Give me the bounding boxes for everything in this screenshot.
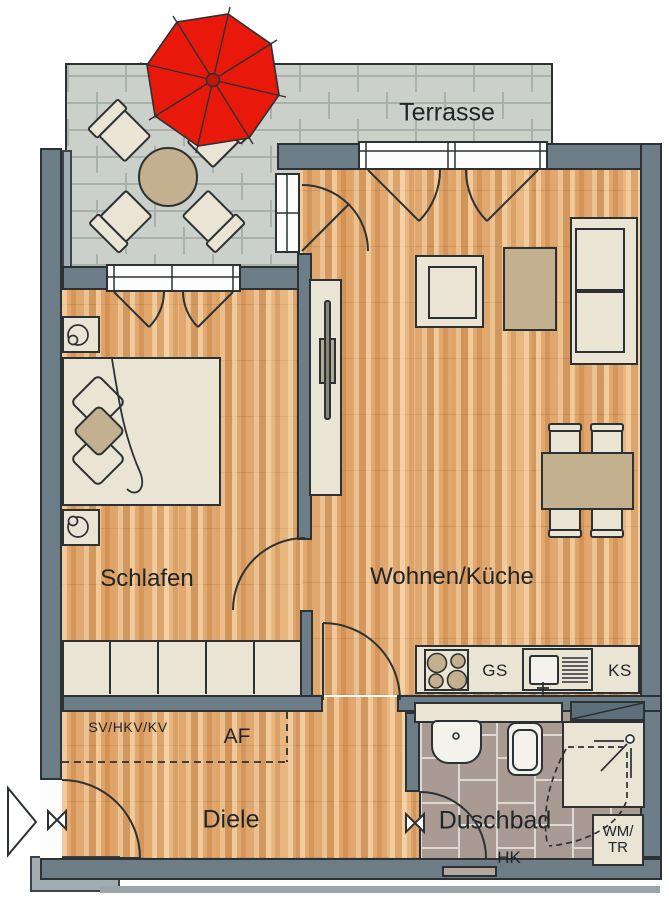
tv-screen	[324, 300, 331, 420]
armchair-seat	[428, 266, 477, 319]
label-wm-line1: WM/	[603, 824, 634, 840]
dining-chair-seat	[591, 507, 623, 531]
shower	[562, 721, 645, 808]
living-tall-window	[275, 173, 300, 253]
bedroom-window	[106, 264, 241, 292]
dining-table	[541, 452, 634, 510]
room-label-diele: Diele	[203, 806, 260, 835]
dining-chair-back	[548, 529, 582, 538]
label-gs: GS	[482, 661, 508, 681]
radiator	[442, 866, 497, 877]
wall-bottom	[40, 858, 662, 880]
floor-plan: Terrasse Schlafen Wohnen/Küche Diele Dus…	[0, 0, 669, 900]
entrance-arrow-icon	[8, 788, 36, 855]
label-sv-hkv-kv: SV/HKV/KV	[88, 719, 167, 735]
wall-hall-left	[62, 695, 323, 712]
dining-chair-back	[590, 529, 624, 538]
dining-chair-seat	[549, 430, 581, 454]
terrace-parapet	[62, 150, 72, 270]
kitchen-sink-basin	[529, 655, 559, 685]
toilet-bowl	[512, 729, 538, 771]
label-hk: HK	[497, 848, 521, 868]
label-wm-tr: WM/ TR	[603, 824, 634, 856]
label-wm-line2: TR	[603, 840, 634, 856]
terrace-table	[138, 147, 198, 207]
terrace-sliding-door	[358, 141, 548, 170]
wall-left	[40, 148, 62, 780]
wall-bath-left	[405, 712, 420, 792]
room-label-schlafen: Schlafen	[100, 565, 193, 593]
dining-chair-seat	[591, 430, 623, 454]
room-label-terrasse: Terrasse	[399, 99, 495, 128]
label-ks: KS	[608, 661, 632, 681]
bath-sink	[431, 720, 482, 764]
duct-shaft	[570, 701, 645, 721]
room-label-wohnen-kueche: Wohnen/Küche	[370, 563, 534, 591]
sofa-cushion-bottom	[575, 291, 625, 353]
nightstand-top	[62, 316, 100, 353]
exterior-edge-line	[100, 886, 660, 893]
entrance-opening	[40, 780, 62, 858]
stove	[424, 649, 469, 691]
label-af: AF	[224, 725, 251, 749]
sofa-cushion-top	[575, 228, 625, 291]
dining-chair-seat	[549, 507, 581, 531]
coffee-table	[503, 247, 557, 331]
nightstand-bottom	[62, 509, 100, 546]
room-label-duschbad: Duschbad	[439, 807, 552, 836]
wardrobe	[62, 640, 302, 697]
